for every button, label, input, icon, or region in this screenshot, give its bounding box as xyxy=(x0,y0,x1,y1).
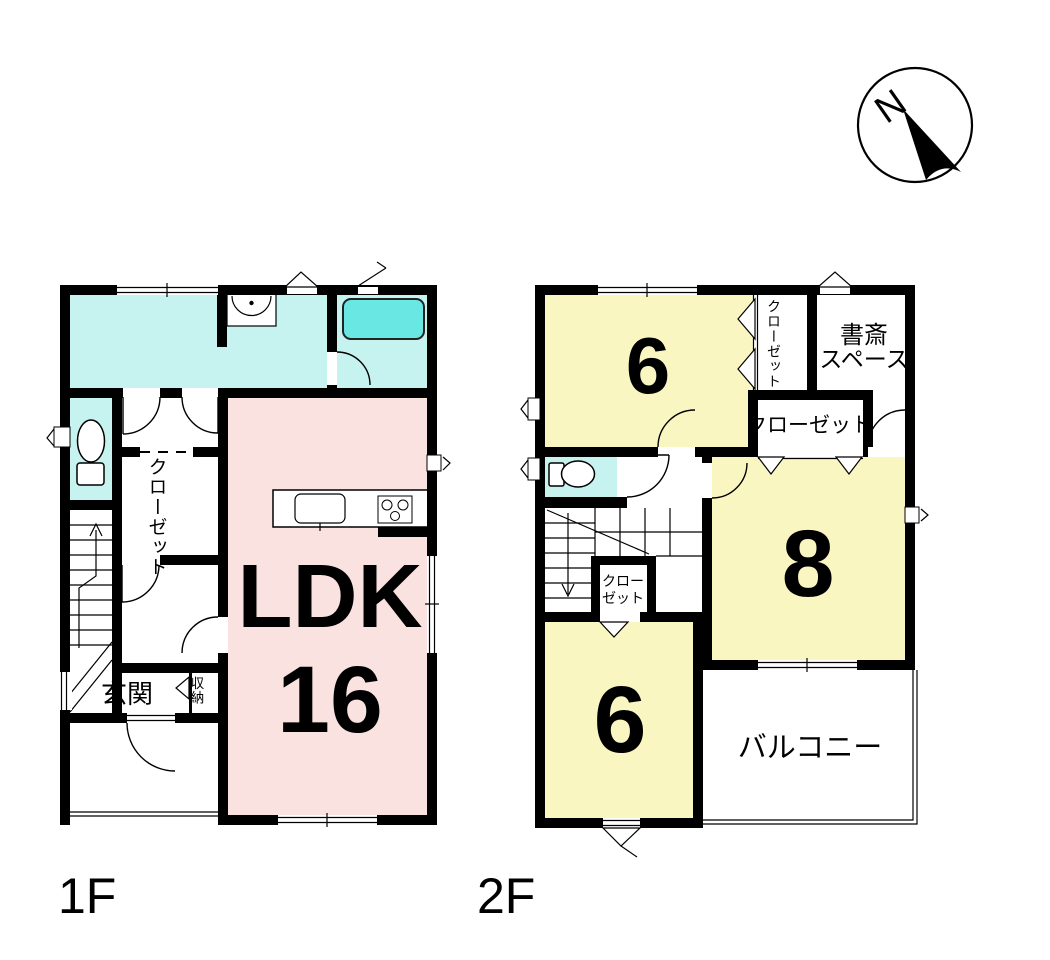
window-entrance-left xyxy=(58,672,72,710)
vent-toilet-1f-icon xyxy=(47,427,70,447)
closet-vertical-label: クローゼット xyxy=(766,299,782,389)
door-hall xyxy=(182,388,218,433)
kitchen-counter xyxy=(273,490,428,531)
closet-1f-label: クローゼット xyxy=(146,457,167,577)
floor2-label: 2F xyxy=(477,868,535,924)
toilet-2f xyxy=(549,461,595,487)
window-ldk-bottom xyxy=(278,813,377,827)
door-toilet-2f xyxy=(627,455,669,497)
compass: N xyxy=(858,68,972,182)
door-ldk xyxy=(182,617,228,653)
room8-label: 8 xyxy=(782,511,835,617)
vent-room6-left-icon xyxy=(521,398,540,420)
ldk-label: LDK xyxy=(238,547,423,647)
kitchen-sink xyxy=(295,494,345,523)
floor1-label: 1F xyxy=(58,868,116,924)
floorplan-page: N xyxy=(0,0,1050,960)
vent-study-top-icon xyxy=(818,272,852,294)
study-label-line2: スペース xyxy=(819,346,908,372)
storage-fold-door-icon xyxy=(176,677,189,699)
washroom-floor xyxy=(70,295,327,388)
vent-toilet-2f-left-icon xyxy=(521,458,540,480)
closet-small-label-line2: ゼット xyxy=(602,590,644,606)
ldk-size-label: 16 xyxy=(277,647,383,753)
room6-top-label: 6 xyxy=(626,321,671,410)
closet-horizontal-label: クローゼット xyxy=(746,414,872,437)
window-room6-top xyxy=(598,283,697,297)
door-washroom xyxy=(123,388,160,434)
porch-edge xyxy=(70,812,218,816)
washbasin xyxy=(227,293,276,326)
balcony-label: バルコニー xyxy=(738,732,882,764)
storage-label: 収納 xyxy=(189,676,205,706)
door-entrance xyxy=(127,713,175,771)
stove xyxy=(378,496,412,523)
closet-small-label-line1: クロー xyxy=(602,573,644,589)
vent-room8-right-icon xyxy=(905,507,928,523)
floorplan-canvas: N xyxy=(0,0,1050,960)
bathtub xyxy=(343,299,424,339)
window-room8-bottom xyxy=(758,658,857,672)
vent-room6-bottom-icon xyxy=(603,818,640,857)
window-ldk-right xyxy=(425,556,439,653)
room6-bottom-label: 6 xyxy=(594,667,647,773)
study-label-line1: 書斎 xyxy=(840,322,888,349)
window-washroom-top xyxy=(117,283,218,297)
entrance-label: 玄関 xyxy=(101,679,153,709)
vent-ldk-right-icon xyxy=(427,455,450,471)
door-study xyxy=(868,410,905,457)
toilet-1f xyxy=(77,420,105,485)
